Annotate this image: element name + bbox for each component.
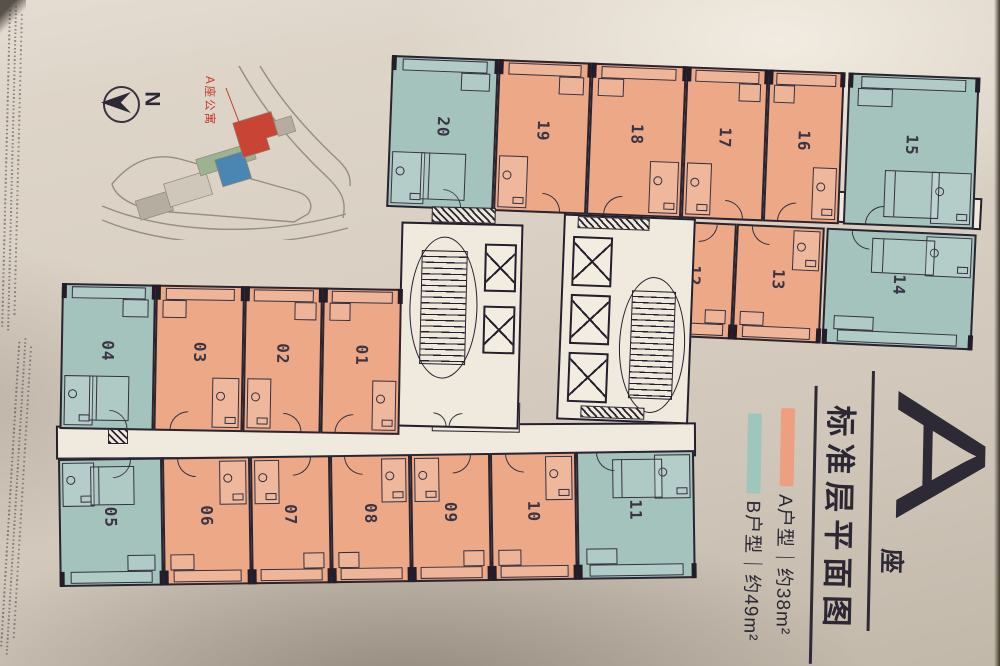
stairwell bbox=[408, 236, 479, 380]
unit-number: 09 bbox=[441, 502, 460, 524]
kitchen-counter bbox=[123, 299, 149, 317]
bathroom bbox=[246, 378, 271, 429]
kitchen-counter bbox=[338, 552, 360, 568]
balcony bbox=[501, 565, 568, 578]
balcony bbox=[260, 568, 323, 581]
entry-door-arc bbox=[541, 193, 561, 213]
bed bbox=[89, 376, 130, 421]
kitchen-counter bbox=[774, 85, 795, 104]
balcony bbox=[420, 566, 483, 579]
bed bbox=[612, 459, 662, 499]
balcony bbox=[253, 289, 314, 302]
kitchen-counter bbox=[463, 550, 485, 566]
kitchen-counter bbox=[739, 83, 762, 102]
unit-03: 03 bbox=[153, 285, 245, 433]
bathroom bbox=[254, 460, 279, 504]
kitchen-counter bbox=[704, 309, 726, 324]
unit-14: 14 bbox=[822, 228, 977, 351]
kitchen-counter bbox=[586, 549, 618, 565]
kitchen-counter bbox=[498, 550, 522, 566]
entry-door-arc bbox=[292, 456, 311, 475]
unit-17: 17 bbox=[681, 66, 769, 221]
unit-05: 05 bbox=[58, 458, 164, 587]
bed bbox=[419, 152, 466, 200]
balcony bbox=[777, 73, 836, 87]
legend: A 座 标准层平面图 A户型｜约38m² B户型｜约49m² bbox=[737, 357, 1000, 666]
entry-door-arc bbox=[505, 453, 524, 472]
unit-number: 17 bbox=[715, 127, 735, 149]
entry-door-arc bbox=[698, 223, 718, 243]
bathroom bbox=[381, 458, 406, 502]
bathroom bbox=[414, 458, 439, 502]
unit-number: 05 bbox=[101, 507, 120, 529]
unit-number: 07 bbox=[281, 504, 300, 526]
balcony bbox=[508, 62, 581, 77]
unit-13: 13 bbox=[732, 224, 825, 344]
entry-door-arc bbox=[776, 202, 796, 222]
unit-number: 06 bbox=[197, 505, 216, 527]
balcony bbox=[340, 567, 403, 580]
unit-number: 04 bbox=[98, 340, 117, 362]
kitchen-counter bbox=[127, 555, 155, 571]
unit-number: 11 bbox=[626, 499, 645, 521]
kitchen-counter bbox=[598, 78, 624, 97]
elevator-shaft bbox=[484, 244, 517, 293]
core-left bbox=[397, 222, 524, 430]
unit-number: 08 bbox=[361, 503, 380, 525]
bed bbox=[883, 170, 940, 218]
kitchen-counter bbox=[170, 554, 194, 570]
balcony bbox=[72, 286, 146, 299]
elevator-shaft bbox=[569, 294, 611, 345]
unit-10: 10 bbox=[490, 452, 578, 581]
unit-number: 19 bbox=[533, 120, 553, 142]
balcony bbox=[173, 569, 242, 582]
unit-number: 20 bbox=[433, 116, 453, 138]
floor-plan-photo: N A座公寓 bbox=[0, 0, 1000, 666]
bathroom bbox=[792, 230, 821, 271]
unit-09: 09 bbox=[410, 453, 492, 582]
unit-number: 16 bbox=[794, 130, 814, 152]
unit-07: 07 bbox=[250, 455, 332, 584]
unit-20: 20 bbox=[386, 55, 499, 211]
kitchen-counter bbox=[329, 303, 351, 321]
unit-number: 03 bbox=[190, 342, 209, 364]
unit-04: 04 bbox=[59, 283, 156, 431]
bathroom bbox=[648, 161, 679, 214]
unit-number: 18 bbox=[627, 124, 647, 146]
bed bbox=[871, 237, 936, 275]
entry-door-arc bbox=[451, 454, 470, 473]
bathroom bbox=[211, 377, 239, 428]
balcony bbox=[165, 288, 235, 301]
kitchen-counter bbox=[461, 73, 490, 92]
bathroom bbox=[545, 456, 572, 501]
bathroom bbox=[811, 167, 837, 220]
bathroom bbox=[497, 155, 528, 208]
paper-edge bbox=[994, 0, 1000, 666]
type-a-label: A户型｜约38m² bbox=[770, 494, 800, 636]
type-a-swatch bbox=[780, 408, 796, 486]
kitchen-counter bbox=[303, 553, 325, 569]
bathroom bbox=[685, 162, 712, 215]
entry-door-arc bbox=[751, 225, 771, 245]
unit-11: 11 bbox=[576, 450, 696, 580]
unit-number: 15 bbox=[902, 134, 922, 156]
wing-left: 04 03 02 01 bbox=[59, 283, 401, 435]
stairwell bbox=[616, 276, 687, 414]
kitchen-counter bbox=[295, 302, 317, 320]
unit-19: 19 bbox=[493, 59, 592, 214]
unit-06: 06 bbox=[162, 456, 252, 585]
elevator-shaft bbox=[571, 236, 613, 287]
kitchen-counter bbox=[857, 88, 893, 108]
entry-door-arc bbox=[283, 413, 302, 432]
core-right bbox=[556, 214, 696, 425]
kitchen-counter bbox=[163, 300, 187, 318]
unit-number: 01 bbox=[352, 345, 371, 367]
balcony bbox=[71, 571, 153, 584]
building-letter: A bbox=[887, 390, 992, 520]
wing-top: 20 19 18 17 16 bbox=[386, 55, 979, 229]
double-door-arc bbox=[433, 412, 463, 428]
unit-08: 08 bbox=[330, 454, 412, 583]
wing-right: 12 13 14 bbox=[652, 220, 977, 350]
unit-18: 18 bbox=[586, 63, 687, 219]
balcony bbox=[837, 329, 957, 346]
bathroom bbox=[371, 380, 396, 431]
unit-number: 13 bbox=[768, 268, 788, 290]
bed bbox=[90, 466, 135, 506]
kitchen-counter bbox=[739, 311, 763, 326]
unit-02: 02 bbox=[242, 286, 323, 433]
type-b-swatch bbox=[746, 413, 762, 493]
entry-door-arc bbox=[334, 414, 353, 433]
entry-door-arc bbox=[177, 458, 196, 477]
flue-hatch bbox=[580, 405, 644, 419]
wing-bottom: 05 06 07 08 09 bbox=[58, 450, 696, 587]
unit-01: 01 bbox=[320, 288, 402, 435]
bathroom bbox=[219, 460, 247, 505]
entry-door-arc bbox=[344, 456, 363, 475]
unit-15: 15 bbox=[843, 73, 980, 230]
type-b-label: B户型｜约49m² bbox=[738, 500, 768, 642]
unit-number: 14 bbox=[889, 274, 909, 296]
unit-number: 10 bbox=[524, 501, 543, 523]
elevator-shaft bbox=[567, 352, 609, 403]
entry-door-arc bbox=[169, 411, 188, 430]
elevator-shaft bbox=[482, 306, 515, 355]
kitchen-counter bbox=[558, 76, 584, 95]
balcony bbox=[403, 58, 488, 73]
balcony bbox=[331, 291, 393, 304]
building-suffix: 座 bbox=[875, 548, 912, 574]
flue-hatch bbox=[577, 216, 649, 231]
balcony bbox=[695, 70, 759, 84]
balcony bbox=[590, 563, 684, 576]
unit-number: 02 bbox=[273, 343, 292, 365]
unit-16: 16 bbox=[763, 69, 845, 224]
plan-title: 标准层平面图 bbox=[816, 405, 866, 634]
balcony bbox=[741, 325, 810, 340]
entry-door-arc bbox=[724, 200, 744, 220]
entry-door-arc bbox=[851, 230, 871, 250]
flue-hatch bbox=[432, 206, 496, 224]
entry-door-arc bbox=[865, 205, 885, 225]
entry-door-arc bbox=[603, 195, 623, 215]
